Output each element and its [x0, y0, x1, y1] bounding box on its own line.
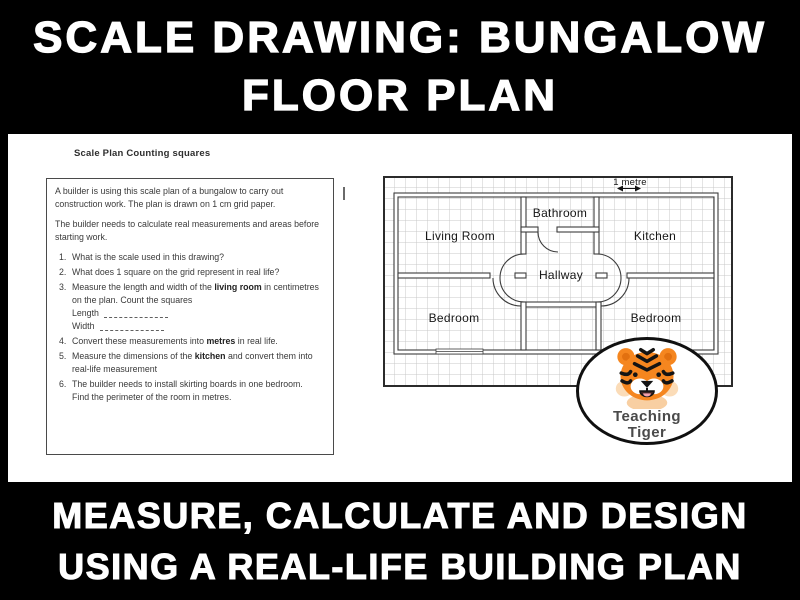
resource-preview: SCALE DRAWING: BUNGALOW FLOOR PLAN Scale…	[0, 0, 800, 600]
question-6: 6. The builder needs to install skirting…	[55, 378, 325, 404]
top-banner-line-2: FLOOR PLAN	[242, 67, 558, 125]
bathroom-bottom-wall	[521, 227, 538, 232]
question-5-number: 5.	[55, 350, 72, 376]
wall-stub	[515, 273, 526, 278]
top-banner-line-1: SCALE DRAWING: BUNGALOW	[33, 9, 767, 67]
question-2-number: 2.	[55, 266, 72, 279]
question-3: 3. Measure the length and width of the l…	[55, 281, 325, 333]
question-2: 2. What does 1 square on the grid repres…	[55, 266, 325, 279]
room-label-hallway: Hallway	[539, 268, 583, 282]
room-label-bathroom: Bathroom	[533, 206, 587, 220]
room-label-bedroom-right: Bedroom	[631, 311, 682, 325]
wall-bedroom-hall	[596, 302, 601, 350]
width-label: Width	[72, 320, 95, 333]
wall-bedroom-hall	[521, 302, 526, 350]
bottom-banner-line-1: MEASURE, CALCULATE AND DESIGN	[52, 490, 748, 541]
question-6-text: The builder needs to install skirting bo…	[72, 378, 325, 404]
room-label-bedroom-left: Bedroom	[429, 311, 480, 325]
wall-stub	[596, 273, 607, 278]
question-1-number: 1.	[55, 251, 72, 264]
wall-bathroom-kitchen	[594, 197, 599, 254]
question-4: 4. Convert these measurements into metre…	[55, 335, 325, 348]
question-3-text: Measure the length and width of the livi…	[72, 281, 325, 333]
question-5: 5. Measure the dimensions of the kitchen…	[55, 350, 325, 376]
content-panel: Scale Plan Counting squares A builder is…	[8, 134, 792, 482]
answer-blank	[104, 309, 168, 318]
length-label: Length	[72, 307, 99, 320]
question-6-line-2: Find the perimeter of the room in metres…	[72, 391, 325, 404]
worksheet-intro-2: The builder needs to calculate real meas…	[55, 218, 325, 244]
worksheet-intro-1: A builder is using this scale plan of a …	[55, 185, 325, 211]
logo-text-line-1: Teaching	[613, 409, 681, 425]
text-cursor	[343, 187, 345, 200]
room-label-living-room: Living Room	[425, 229, 495, 243]
question-1: 1. What is the scale used in this drawin…	[55, 251, 325, 264]
question-4-number: 4.	[55, 335, 72, 348]
width-row: Width	[72, 320, 325, 333]
scale-label: 1 metre	[613, 177, 647, 188]
answer-blank	[100, 322, 164, 331]
top-banner: SCALE DRAWING: BUNGALOW FLOOR PLAN	[0, 0, 800, 134]
question-4-text: Convert these measurements into metres i…	[72, 335, 325, 348]
question-3-number: 3.	[55, 281, 72, 333]
teaching-tiger-logo: Teaching Tiger	[576, 337, 718, 445]
wall-livingroom-bedroom	[398, 273, 490, 278]
question-5-text: Measure the dimensions of the kitchen an…	[72, 350, 325, 376]
tiger-face-icon	[608, 345, 686, 409]
logo-text-line-2: Tiger	[628, 425, 666, 441]
worksheet-page: A builder is using this scale plan of a …	[46, 178, 334, 455]
question-6-number: 6.	[55, 378, 72, 404]
bottom-banner-line-2: USING A REAL-LIFE BUILDING PLAN	[58, 541, 742, 592]
wall-livingroom-bathroom	[521, 197, 526, 254]
hallway-bottom-wall	[521, 302, 601, 307]
length-row: Length	[72, 307, 325, 320]
bottom-banner: MEASURE, CALCULATE AND DESIGN USING A RE…	[0, 482, 800, 600]
room-label-kitchen: Kitchen	[634, 229, 676, 243]
question-1-text: What is the scale used in this drawing?	[72, 251, 325, 264]
wall-kitchen-bedroom	[627, 273, 714, 278]
question-2-text: What does 1 square on the grid represent…	[72, 266, 325, 279]
bathroom-bottom-wall	[557, 227, 599, 232]
worksheet-title: Scale Plan Counting squares	[74, 148, 210, 159]
